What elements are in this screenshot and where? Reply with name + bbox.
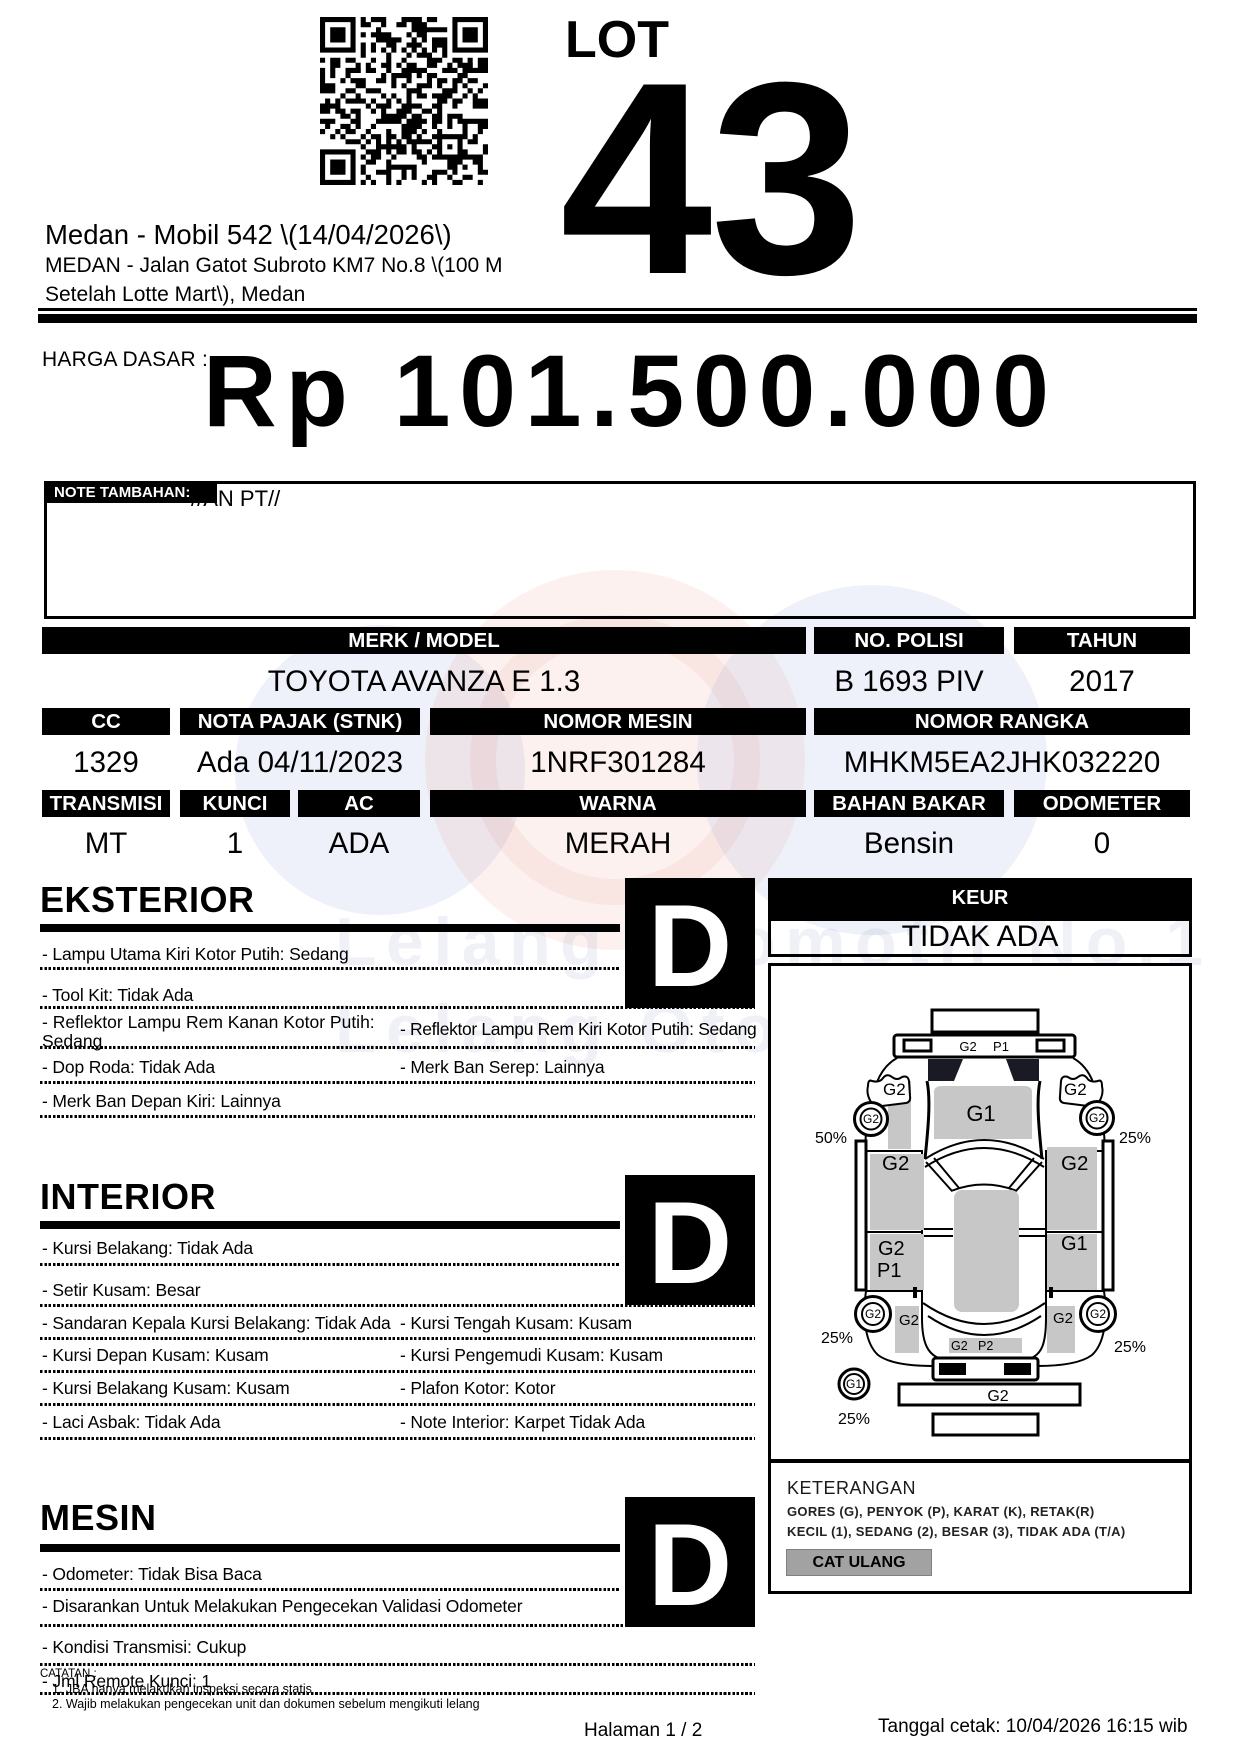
svg-text:G2: G2 [1090,1307,1106,1321]
svg-text:G2: G2 [878,1238,905,1260]
svg-text:G2: G2 [959,1039,976,1054]
svg-text:25%: 25% [1119,1130,1151,1147]
svg-text:25%: 25% [1114,1339,1146,1356]
svg-text:G2: G2 [987,1388,1008,1405]
svg-text:G2: G2 [883,1080,906,1099]
svg-text:25%: 25% [838,1411,870,1428]
svg-text:G2: G2 [1053,1310,1073,1327]
svg-text:G2: G2 [863,1112,879,1126]
svg-text:G2: G2 [882,1152,909,1175]
svg-text:G2: G2 [1089,1111,1105,1125]
svg-text:G2: G2 [865,1307,881,1321]
svg-text:P1: P1 [993,1039,1009,1054]
svg-text:G2: G2 [951,1339,968,1353]
svg-text:P1: P1 [877,1260,901,1282]
svg-text:G1: G1 [1061,1233,1088,1255]
svg-text:G2: G2 [1064,1080,1087,1099]
svg-text:50%: 50% [815,1130,847,1147]
svg-text:P2: P2 [978,1339,993,1353]
svg-text:G1: G1 [966,1101,995,1126]
svg-text:G1: G1 [846,1377,862,1391]
svg-text:G2: G2 [1061,1152,1088,1175]
svg-text:G2: G2 [899,1312,919,1329]
svg-text:25%: 25% [821,1330,853,1347]
